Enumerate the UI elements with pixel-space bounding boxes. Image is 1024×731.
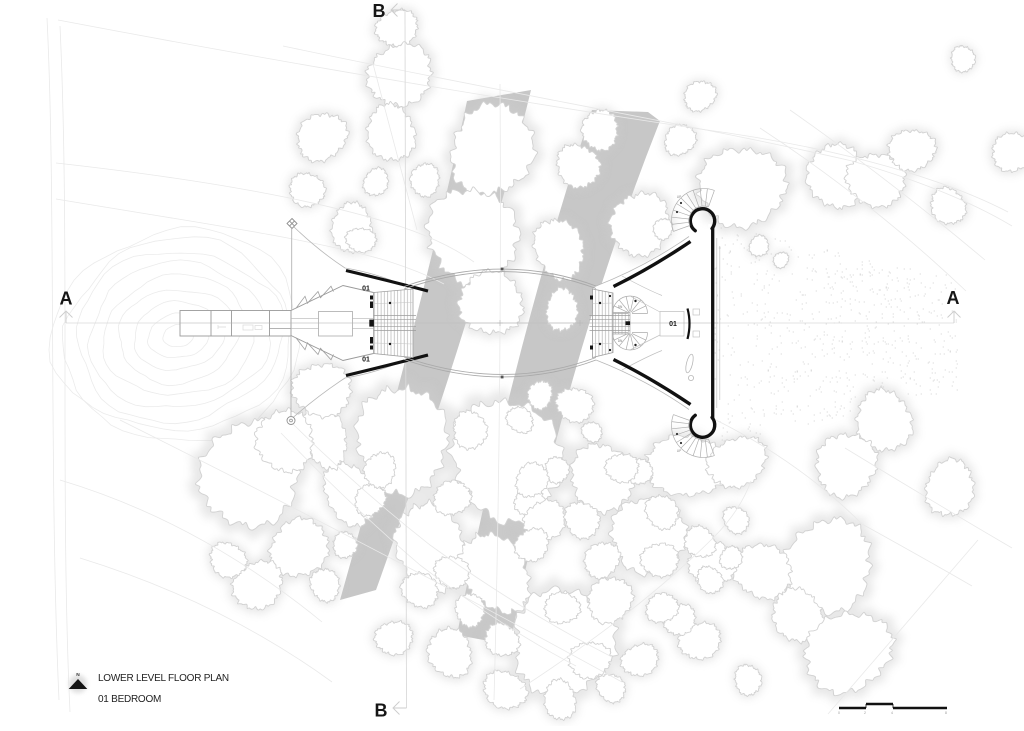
svg-text:01: 01 (362, 286, 370, 293)
svg-text:8: 8 (945, 711, 947, 715)
svg-text:LOWER LEVEL FLOOR PLAN: LOWER LEVEL FLOOR PLAN (98, 673, 229, 684)
svg-text:0: 0 (838, 711, 840, 715)
svg-text:01 BEDROOM: 01 BEDROOM (98, 694, 161, 705)
svg-text:B: B (373, 1, 386, 21)
svg-text:B: B (375, 701, 388, 721)
svg-text:2: 2 (864, 711, 866, 715)
svg-text:DN: DN (618, 339, 623, 343)
svg-text:01: 01 (669, 321, 677, 328)
svg-text:N: N (76, 672, 80, 678)
svg-text:A: A (60, 289, 73, 309)
svg-text:4: 4 (891, 711, 893, 715)
svg-text:01: 01 (362, 357, 370, 364)
svg-text:UP: UP (677, 449, 681, 453)
svg-text:DN: DN (618, 305, 623, 309)
svg-text:A: A (947, 288, 960, 308)
svg-text:UP: UP (677, 195, 681, 199)
